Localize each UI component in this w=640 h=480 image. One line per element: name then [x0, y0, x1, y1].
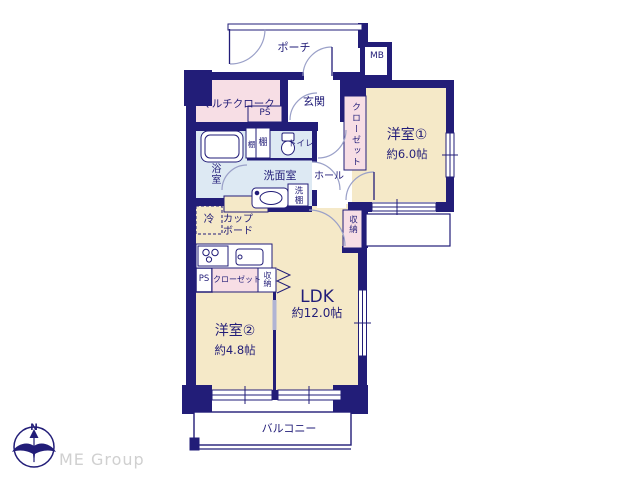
- balcony-label: バルコニー: [246, 423, 332, 436]
- bath-label: 浴室: [209, 163, 219, 185]
- closet-1-label: クローゼット: [350, 102, 359, 168]
- western-room-2-name: 洋室②: [206, 323, 264, 339]
- porch-label: ポーチ: [272, 42, 316, 55]
- me-group-logo: ME Group: [59, 451, 145, 469]
- floor-plan-drawing: [0, 0, 640, 480]
- toilet-label: トイレ: [288, 140, 314, 150]
- western-room-2-size: 約4.8帖: [208, 344, 262, 357]
- western-room-1-size: 約6.0帖: [377, 148, 437, 161]
- washroom-label: 洗面室: [255, 170, 305, 183]
- bathtub-icon: [201, 131, 243, 162]
- wash-shelf-label: 洗棚: [294, 186, 303, 205]
- entrance-label: 玄関: [294, 96, 334, 109]
- closet-2-label: クローゼット: [213, 275, 257, 284]
- ldk-name: LDK: [287, 288, 347, 308]
- washbasin-icon: [252, 188, 288, 208]
- storage-hall-label: 収納: [348, 215, 357, 234]
- hall-label: ホール: [312, 171, 346, 183]
- fridge-label: 冷: [202, 213, 216, 225]
- ldk-size: 約12.0帖: [283, 307, 351, 321]
- cupboard-label-line1: カップ: [222, 214, 254, 226]
- ps-kitchen-label: PS: [197, 275, 211, 285]
- shelf-a-label: 棚: [247, 141, 256, 150]
- floor-plan: ポーチ MB 玄関 マルチクローク PS クローゼット 洋室① 約6.0帖 浴室…: [0, 0, 640, 480]
- ps-upper-label: PS: [250, 108, 280, 118]
- meter-box-label: MB: [370, 52, 382, 61]
- western-room-1-name: 洋室①: [377, 127, 437, 143]
- cupboard-label-line2: ボード: [222, 226, 254, 238]
- sliding-door: [273, 300, 277, 330]
- compass-north-label: N: [29, 423, 39, 433]
- kitchen-counter-icon: [196, 244, 272, 268]
- shelf-b-label: 棚: [256, 138, 270, 148]
- storage-2-label: 収納: [263, 271, 271, 287]
